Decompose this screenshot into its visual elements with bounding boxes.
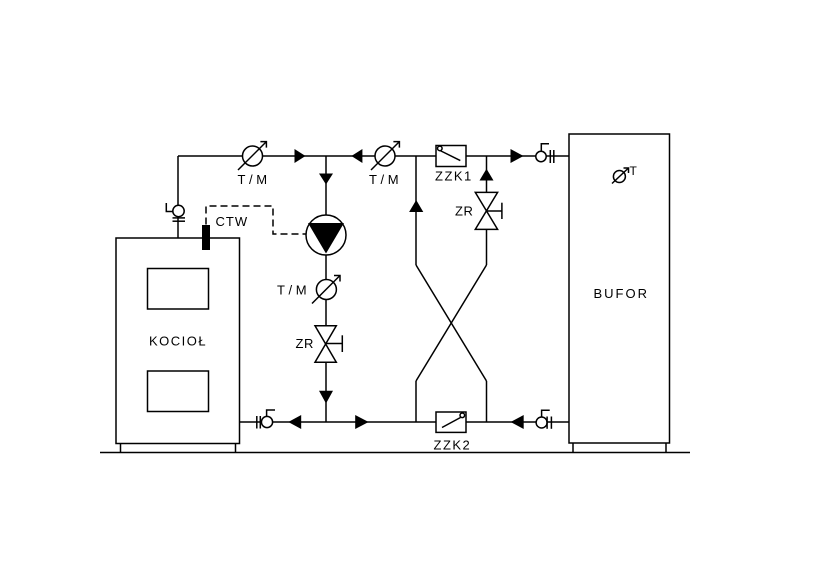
svg-text:T: T bbox=[630, 164, 638, 178]
svg-text:ZZK2: ZZK2 bbox=[434, 438, 472, 453]
svg-text:ZR: ZR bbox=[455, 204, 473, 219]
svg-text:T/M: T/M bbox=[369, 172, 402, 187]
svg-text:T/M: T/M bbox=[238, 172, 271, 187]
svg-text:CTW: CTW bbox=[216, 214, 249, 229]
svg-text:KOCIOŁ: KOCIOŁ bbox=[149, 334, 207, 349]
svg-text:ZR: ZR bbox=[296, 336, 314, 351]
svg-text:ZZK1: ZZK1 bbox=[435, 169, 473, 184]
svg-text:BUFOR: BUFOR bbox=[594, 286, 650, 301]
svg-text:T/M: T/M bbox=[277, 283, 310, 298]
